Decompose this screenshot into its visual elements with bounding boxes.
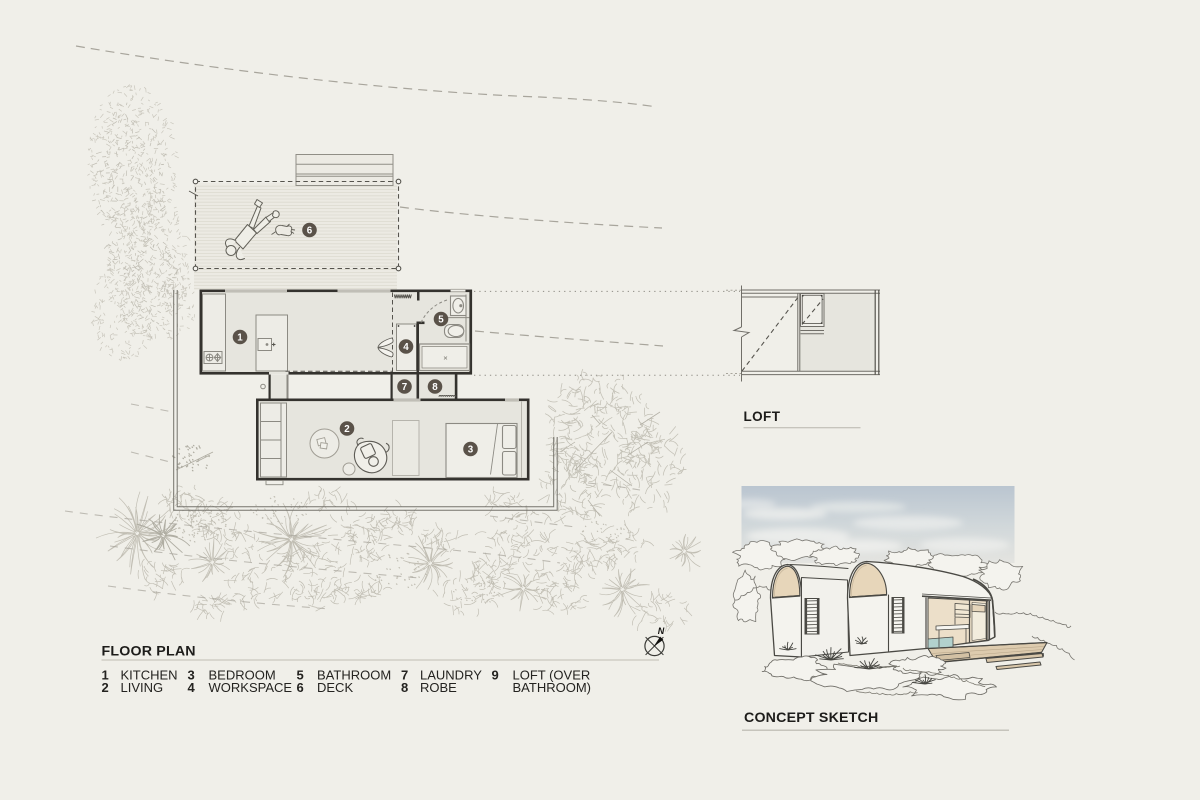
svg-text:8: 8 [401, 680, 408, 695]
svg-text:N: N [658, 626, 665, 636]
svg-text:LOFT: LOFT [744, 409, 781, 424]
svg-text:ROBE: ROBE [420, 680, 457, 695]
svg-text:BATHROOM): BATHROOM) [513, 680, 591, 695]
svg-text:6: 6 [307, 225, 313, 236]
svg-text:5: 5 [438, 314, 444, 325]
svg-text:8: 8 [432, 382, 438, 393]
svg-text:3: 3 [468, 444, 474, 455]
svg-text:4: 4 [188, 680, 196, 695]
svg-text:FLOOR PLAN: FLOOR PLAN [102, 644, 196, 660]
svg-text:9: 9 [492, 668, 499, 683]
svg-text:6: 6 [297, 680, 304, 695]
svg-text:7: 7 [402, 382, 408, 393]
svg-text:CONCEPT SKETCH: CONCEPT SKETCH [744, 710, 878, 726]
svg-text:LIVING: LIVING [121, 680, 164, 695]
svg-text:1: 1 [237, 332, 243, 343]
svg-text:2: 2 [102, 680, 109, 695]
svg-text:4: 4 [403, 342, 409, 353]
svg-text:DECK: DECK [317, 680, 353, 695]
svg-text:2: 2 [344, 424, 350, 435]
svg-text:WORKSPACE: WORKSPACE [209, 680, 293, 695]
